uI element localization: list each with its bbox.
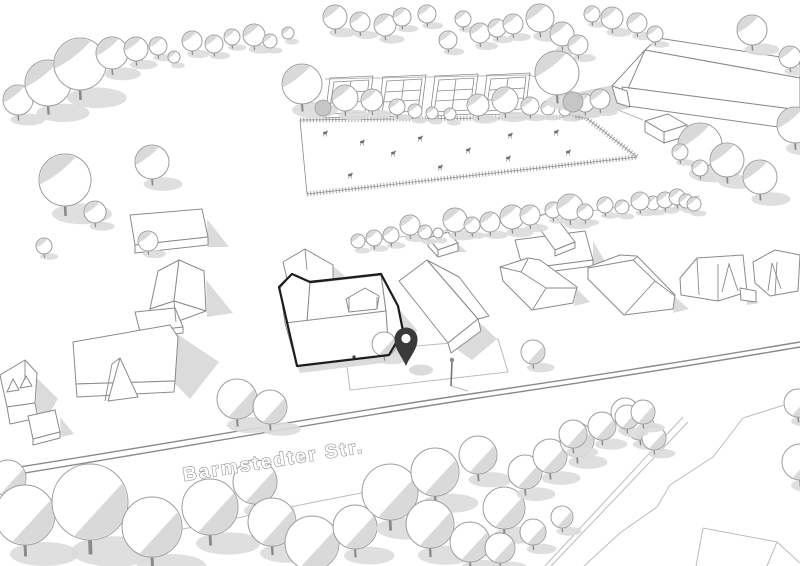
tree-trunk — [80, 89, 81, 100]
tree-trunk — [65, 205, 66, 216]
animal-figure — [360, 140, 365, 146]
animal-legs — [419, 139, 422, 141]
building-shadow — [574, 289, 590, 306]
tree-trunk — [25, 544, 26, 556]
boundary-line — [451, 386, 468, 391]
animal-legs — [392, 154, 395, 156]
tree-trunk — [210, 534, 211, 546]
tree-shadow — [752, 192, 791, 206]
tree — [551, 506, 582, 536]
tree — [408, 104, 428, 124]
allotment-line — [386, 90, 421, 92]
animal-legs — [567, 153, 570, 155]
animal-head — [363, 140, 365, 142]
tree-trunk — [430, 547, 431, 557]
tree — [784, 389, 800, 427]
tree-gray — [563, 92, 583, 112]
tree — [687, 197, 707, 217]
tree-shadow — [144, 177, 183, 191]
tree — [782, 444, 800, 493]
animal-head — [421, 136, 423, 138]
animal-legs — [324, 134, 327, 136]
boundary-line — [767, 542, 777, 566]
animal-head — [511, 133, 513, 135]
lamp-head — [450, 358, 454, 362]
building-face — [0, 360, 37, 407]
tree — [393, 8, 418, 32]
lamp-post — [451, 362, 452, 386]
animal-legs — [349, 176, 352, 178]
building-face — [588, 255, 675, 315]
building-shadow — [207, 219, 229, 247]
boundary-line — [703, 528, 800, 563]
tree-shadow — [10, 542, 79, 566]
building-shadow — [206, 280, 233, 317]
building-shadow — [458, 244, 467, 252]
tree-trunk — [152, 556, 153, 566]
animal-figure — [438, 165, 443, 171]
animal-head — [557, 130, 559, 132]
door-mark — [352, 355, 355, 358]
tree-shadow — [344, 547, 395, 565]
tree — [520, 519, 556, 554]
animal-figure — [508, 133, 513, 139]
animal-figure — [418, 136, 423, 142]
animal-head — [351, 173, 353, 175]
tree-canopy — [433, 228, 443, 238]
building-shadow — [60, 417, 74, 437]
tree-gray — [315, 100, 331, 116]
site-map-canvas[interactable]: Barmstedter Str. — [0, 0, 800, 566]
animal-figure — [348, 173, 353, 179]
tree-trunk — [90, 539, 91, 554]
animal-legs — [361, 143, 364, 145]
tree-shadow — [517, 487, 556, 501]
tree — [737, 15, 779, 56]
tree-trunk — [390, 519, 391, 531]
building-shadow — [175, 334, 219, 399]
tree — [135, 145, 183, 191]
animal-figure — [506, 156, 511, 162]
tree-shadow — [262, 422, 301, 436]
animal-figure — [566, 150, 571, 156]
site-map: Barmstedter Str. — [0, 0, 800, 566]
tree-shadow — [542, 471, 581, 485]
tree-trunk — [272, 545, 273, 555]
building-face — [680, 255, 747, 301]
boundary-line — [696, 528, 703, 566]
tree-shadow — [67, 87, 127, 108]
tree — [743, 160, 791, 206]
animal-figure — [323, 131, 328, 137]
tree — [777, 107, 800, 156]
allotment-line — [452, 79, 456, 111]
animal-legs — [467, 151, 470, 153]
building-face — [740, 288, 756, 302]
animal-head — [569, 150, 571, 152]
animal-legs — [507, 159, 510, 161]
tree — [282, 27, 299, 45]
tree — [168, 51, 185, 69]
tree — [459, 436, 512, 487]
animal-legs — [439, 168, 442, 170]
animal-head — [441, 165, 443, 167]
tree — [418, 5, 443, 29]
tree-shadow — [469, 472, 513, 487]
animal-figure — [391, 151, 396, 157]
animal-head — [326, 131, 328, 133]
allotment-line — [438, 89, 473, 91]
tree — [36, 238, 58, 260]
building-shadow — [673, 297, 689, 313]
tree — [521, 340, 555, 372]
tree-shadow — [104, 67, 141, 80]
animal-head — [394, 151, 396, 153]
tree-shadow — [196, 532, 260, 554]
animal-head — [469, 148, 471, 150]
animal-legs — [555, 133, 558, 135]
animal-figure — [466, 148, 471, 154]
pin-shadow — [409, 365, 433, 376]
fence-rail — [585, 117, 637, 157]
pin-hole — [401, 334, 410, 343]
pin-layer — [395, 328, 434, 376]
animal-head — [509, 156, 511, 158]
fence-rail — [307, 157, 637, 194]
animal-figure — [554, 130, 559, 136]
tree — [439, 31, 464, 55]
animal-legs — [509, 136, 512, 138]
fence-edge — [300, 120, 307, 194]
